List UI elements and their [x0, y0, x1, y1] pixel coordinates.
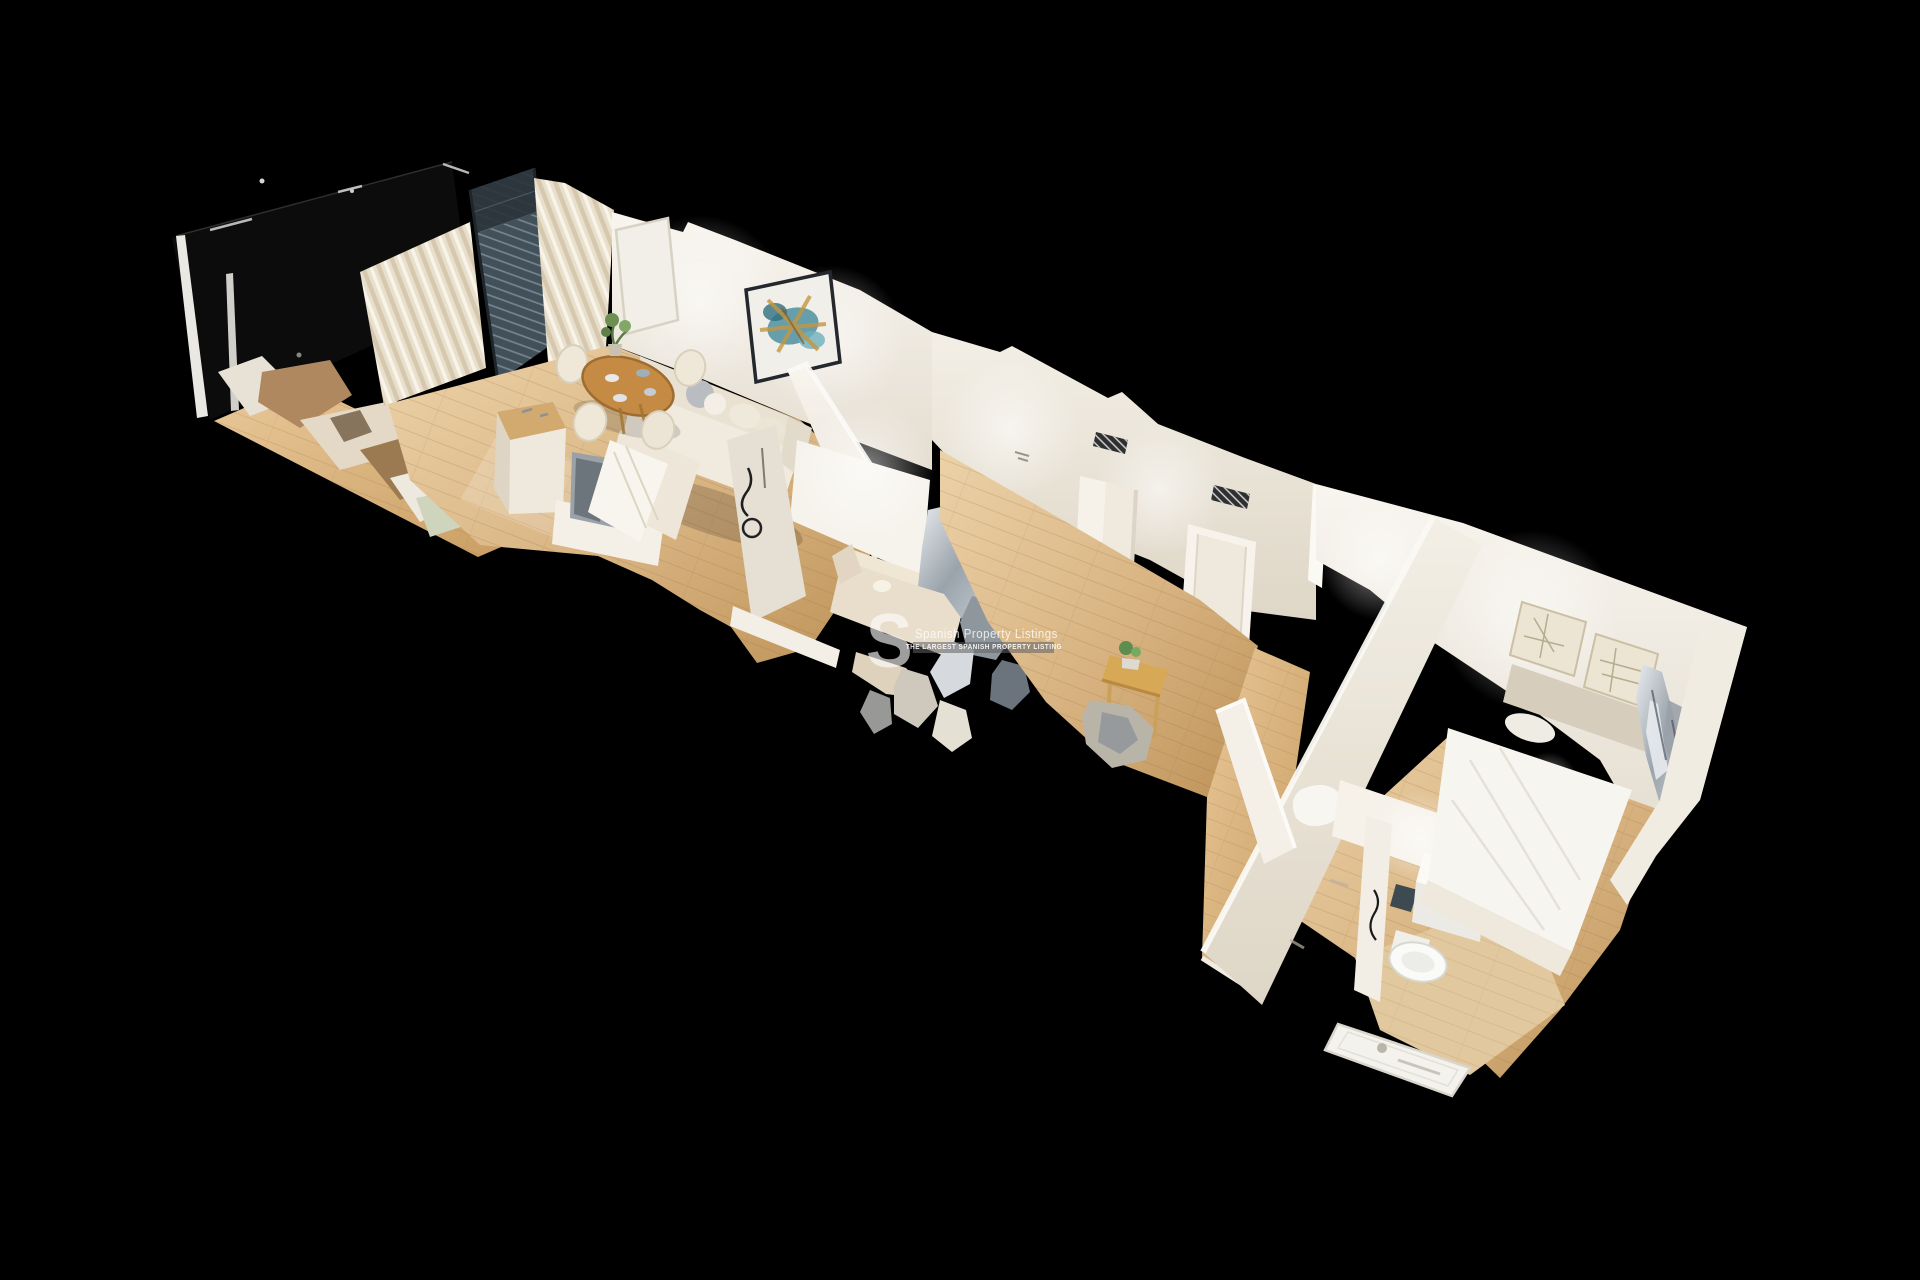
- watermark-tagline: THE LARGEST SPANISH PROPERTY LISTING: [905, 644, 1061, 651]
- abstract-painting: [746, 272, 840, 382]
- watermark-brand: Spanish Property Listings: [915, 626, 1058, 641]
- watermark-logo: S: [866, 604, 913, 680]
- round-pillow: [704, 393, 726, 415]
- kitchen-island: [494, 402, 566, 514]
- watermark-tagline-bar: THE LARGEST SPANISH PROPERTY LISTING: [913, 642, 1054, 653]
- wall-art-canvas: [616, 218, 678, 334]
- dollhouse-3d-viewport[interactable]: S Spanish Property Listings THE LARGEST …: [0, 0, 1920, 1280]
